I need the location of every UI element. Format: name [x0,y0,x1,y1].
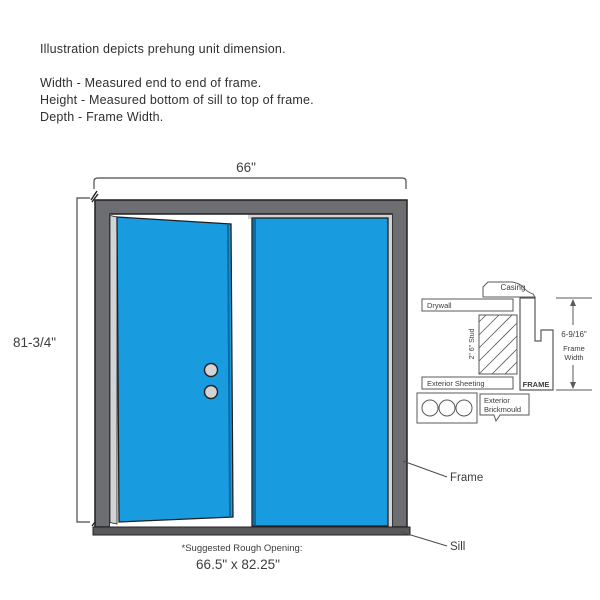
width-dimension-group: 66" [91,160,406,200]
wall-cross-section: Casing Drywall 2" 6" Stud [417,282,592,423]
frame-callout-label: Frame [450,472,483,484]
arrow-down-icon [570,382,576,389]
frame-width-value: 6-9/16" [561,330,587,339]
width-dimension-bracket [94,178,406,189]
rough-opening-value: 66.5" x 82.25" [196,557,280,572]
door-diagram: 66" 81-3/4" [0,0,600,600]
door-knob-icon [205,386,218,399]
brickmould-label-line2: Brickmould [484,405,521,414]
frame-width-dimension: 6-9/16" Frame Width [556,298,592,390]
brickmould-label-line1: Exterior [484,396,510,405]
deadbolt-icon [205,364,218,377]
stud-label: 2" 6" Stud [469,328,476,359]
frame-profile [520,298,553,390]
arrow-up-icon [570,299,576,306]
brickmould-profile [417,393,477,423]
width-dimension-label: 66" [236,160,256,175]
door-callouts: Frame Sill [401,461,483,553]
right-door-astragal-edge [253,219,256,525]
frame-leader-line [403,461,447,477]
door-sill [93,527,410,535]
rough-opening-label: *Suggested Rough Opening: [182,543,303,554]
height-dimension-label: 81-3/4" [13,335,56,350]
drywall-label: Drywall [427,301,452,310]
sill-leader-line [401,532,447,546]
door-frame-assembly [93,200,410,535]
right-door-panel [252,218,388,526]
frame-width-word-2: Width [564,353,583,362]
sill-callout-label: Sill [450,541,465,553]
casing-label: Casing [501,283,526,292]
frame-width-word-1: Frame [563,344,585,353]
height-dimension-group: 81-3/4" [13,194,98,526]
exterior-sheeting-label: Exterior Sheeting [427,379,485,388]
frame-profile-label: FRAME [523,380,550,389]
product-dimension-page: Illustration depicts prehung unit dimens… [0,0,600,600]
rough-opening-note: *Suggested Rough Opening: 66.5" x 82.25" [182,543,303,572]
stud-hatch-block [479,315,517,374]
height-dimension-bracket [77,198,90,522]
left-door-hinge-edge [110,216,117,525]
